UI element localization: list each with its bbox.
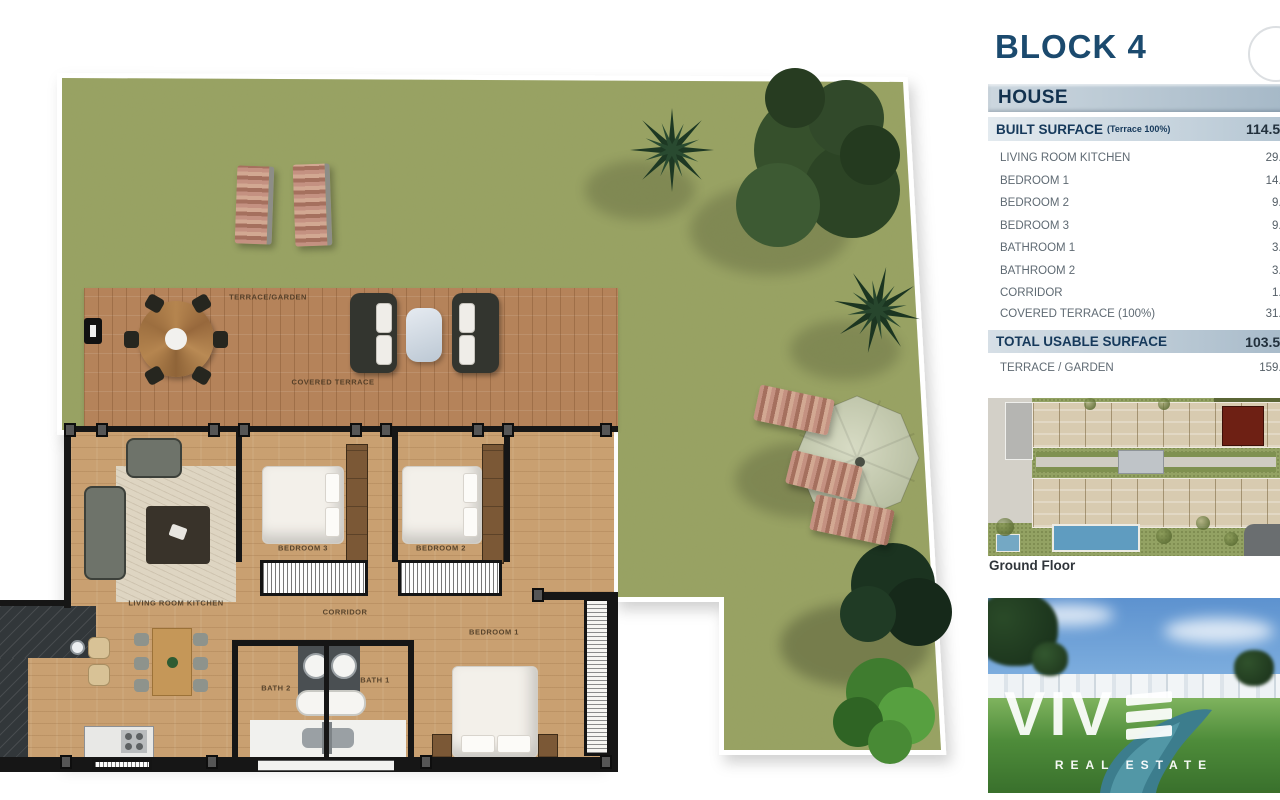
terrace-garden-row: TERRACE / GARDEN 159.2 [1000,362,1280,374]
bed [262,466,344,544]
house-header-bar: HOUSE [988,84,1280,112]
tree-shadow [790,320,900,380]
terrace-round-table [138,301,214,377]
room-label: BEDROOM 1 [1000,175,1069,187]
label-living: LIVING ROOM KITCHEN [128,599,223,608]
kitchen-counter-column [0,658,28,772]
total-surface-label: TOTAL USABLE SURFACE [988,334,1167,349]
built-surface-value: 114.50 [1246,121,1280,137]
wall [232,640,414,646]
wall-pillar [238,423,250,437]
room-label: BATHROOM 2 [1000,265,1075,277]
terrace-sofa [350,293,397,373]
wall [236,432,242,562]
kitchen-sink [70,640,85,655]
room-label: COVERED TERRACE (100%) [1000,308,1155,320]
room-label: BEDROOM 2 [1000,197,1069,209]
total-surface-bar: TOTAL USABLE SURFACE 103.50 [988,330,1280,353]
room-label: CORRIDOR [1000,287,1063,299]
terrace-sofa [452,293,499,373]
sun-lounger [293,163,333,246]
room-value: 9.7 [1272,220,1280,232]
project-photo: VIV REAL ESTATE [988,598,1280,793]
pillow [325,473,340,503]
site-tree [1158,398,1170,410]
ac-unit-vent [90,325,96,337]
wardrobe [346,444,368,564]
room-value: 3.5 [1272,265,1280,277]
wall [64,426,618,432]
pillow [497,735,531,753]
wardrobe [482,444,504,564]
surface-row: BATHROOM 2 3.5 [1000,265,1280,277]
wall-pillar [420,755,432,769]
room-value: 9.7 [1272,197,1280,209]
sofa-cushion [459,335,475,365]
pillow [463,473,478,503]
vive-logo-subtitle: REAL ESTATE [988,758,1280,772]
burner [125,743,132,750]
site-tree [1224,532,1238,546]
room-label: LIVING ROOM KITCHEN [1000,152,1130,164]
room-value: 29.8 [1266,152,1280,164]
wall-pillar [64,423,76,437]
compass-icon [1248,26,1280,82]
total-surface-value: 103.50 [1245,334,1280,350]
room-value: 31.0 [1266,308,1280,320]
table-plant [167,657,178,668]
bed [402,466,482,544]
vive-logo-letters: VIV [1004,684,1116,746]
built-surface-label: BUILT SURFACE [988,122,1103,137]
ground-floor-label: Ground Floor [989,558,1075,573]
label-terrace-garden: TERRACE/GARDEN [229,293,307,302]
wall [392,432,398,562]
site-gray-building [1005,402,1033,460]
wall [504,432,510,562]
site-small-pool [996,534,1020,552]
wall-pillar [600,755,612,769]
dining-chair [134,633,149,646]
vive-logo-e-icon [1126,693,1172,738]
wall [0,600,71,606]
wall-pillar [502,423,514,437]
dining-chair [134,657,149,670]
wall [64,426,71,608]
wall-pillar [208,423,220,437]
label-covered-terrace: COVERED TERRACE [292,378,375,387]
sofa-cushion [376,335,392,365]
room-label: BEDROOM 3 [1000,220,1069,232]
nightstand [538,734,558,758]
wall-pillar [380,423,392,437]
wall [536,592,618,600]
label-bedroom3: BEDROOM 3 [278,544,328,553]
nightstand [432,734,452,758]
site-pool [1052,524,1140,552]
wall-pillar [206,755,218,769]
burner [136,743,143,750]
bed [452,666,538,758]
photo-tree [1234,650,1274,686]
ac-unit [84,318,102,344]
built-surface-sublabel: (Terrace 100%) [1107,124,1170,134]
photo-tree [1032,642,1068,676]
living-sofa [84,486,126,580]
dining-chair [134,679,149,692]
terrace-chair [124,331,139,348]
sink [331,653,357,679]
room-value: 14.6 [1266,175,1280,187]
bar-stool [88,637,110,659]
room-value: 1.7 [1272,287,1280,299]
living-sofa [126,438,182,478]
label-bedroom1: BEDROOM 1 [469,628,519,637]
site-plan-thumbnail [988,398,1280,556]
vive-logo: VIV [1004,684,1172,746]
surface-row: BEDROOM 1 14.6 [1000,175,1280,187]
site-tree [996,518,1014,536]
bar-stool [88,664,110,686]
wall [408,640,414,757]
site-tree [1156,528,1172,544]
burner [125,733,132,740]
surface-row: BEDROOM 2 9.7 [1000,197,1280,209]
wall-pillar [96,423,108,437]
bedroom1-shutter [584,598,610,756]
table-decor [168,524,187,541]
wall-pillar [600,423,612,437]
wall-pillar [350,423,362,437]
wall [610,592,618,772]
wall [232,646,238,757]
room-label: BATHROOM 1 [1000,242,1075,254]
wall-pillar [60,755,72,769]
label-bedroom2: BEDROOM 2 [416,544,466,553]
bathtub [296,690,366,716]
brochure-page: TERRACE/GARDEN COVERED TERRACE LIVING RO… [0,0,1280,800]
bedroom2-window [398,560,502,596]
surface-row: CORRIDOR 1.7 [1000,287,1280,299]
dining-chair [193,633,208,646]
built-surface-bar: BUILT SURFACE (Terrace 100%) 114.50 [988,117,1280,141]
house-header-label: HOUSE [988,87,1068,109]
sun-lounger [235,165,275,244]
dining-chair [193,657,208,670]
burner [136,733,143,740]
terrace-coffee-table [406,308,442,362]
terrace-garden-value: 159.2 [1259,362,1280,374]
surface-row: LIVING ROOM KITCHEN 29.8 [1000,152,1280,164]
terrace-chair [213,331,228,348]
label-corridor: CORRIDOR [323,608,368,617]
dining-chair [193,679,208,692]
kitchen-appliances [84,726,154,758]
living-coffee-table [146,506,210,564]
bedroom3-window [260,560,368,596]
floor-plan: TERRACE/GARDEN COVERED TERRACE LIVING RO… [0,0,985,800]
cloud [1164,618,1274,644]
site-center-structure [1118,450,1164,474]
surface-row: COVERED TERRACE (100%) 31.0 [1000,308,1280,320]
site-tree [1084,398,1096,410]
site-corner-building [1244,524,1280,556]
kitchen-window [92,759,152,770]
sofa-cushion [376,303,392,333]
dining-table [152,628,192,696]
surface-row: BATHROOM 1 3.8 [1000,242,1280,254]
wall-pillar [532,588,544,602]
label-bath2: BATH 2 [261,684,291,693]
highlighted-unit [1222,406,1264,446]
palm-tree [630,108,714,192]
block-title: BLOCK 4 [995,28,1147,66]
room-value: 3.8 [1272,242,1280,254]
pillow [463,507,478,537]
site-units-row-bottom [1032,478,1280,528]
bath-window [258,760,394,771]
pillow [325,507,340,537]
site-tree [1196,516,1210,530]
wall [324,646,329,757]
label-bath1: BATH 1 [360,676,390,685]
terrace-garden-label: TERRACE / GARDEN [1000,362,1114,374]
wall-pillar [472,423,484,437]
sofa-cushion [459,303,475,333]
table-centerpiece [165,328,187,350]
pillow [461,735,495,753]
surface-row: BEDROOM 3 9.7 [1000,220,1280,232]
